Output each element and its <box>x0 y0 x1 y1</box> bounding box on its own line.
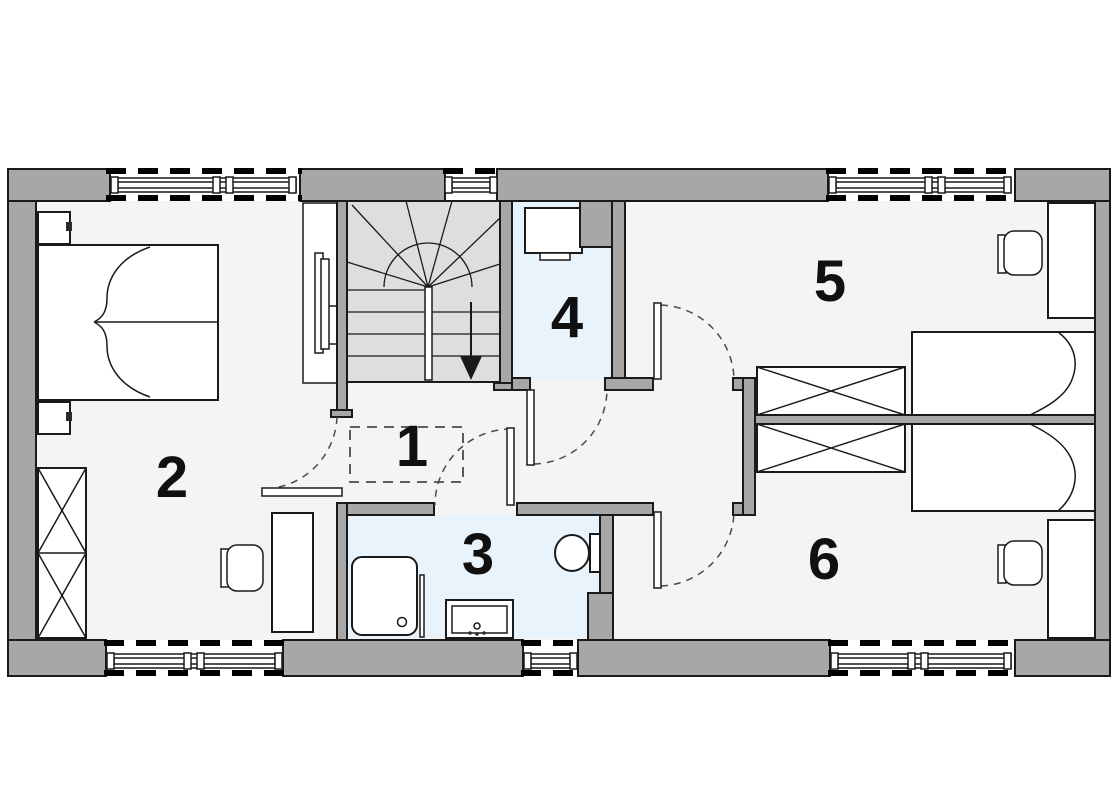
room-label-4: 4 <box>551 285 583 350</box>
outer-wall-top-b <box>300 169 445 201</box>
outer-wall-bottom-d <box>1015 640 1110 676</box>
wall-bath-north-b <box>517 503 653 515</box>
room4-furniture <box>525 208 582 260</box>
chair <box>998 541 1042 585</box>
door-leaf <box>654 303 661 379</box>
chair <box>221 545 263 591</box>
desk <box>1048 520 1095 638</box>
wall-hall-east <box>743 378 755 515</box>
window-bottom-room2 <box>104 643 285 673</box>
chimney-block <box>580 201 612 247</box>
wardrobe <box>757 367 905 415</box>
wall-stub-room6-door <box>733 503 743 515</box>
wall-room4-right <box>612 201 625 378</box>
wall-room4-bottom-right <box>605 378 653 390</box>
desk <box>272 513 313 632</box>
outer-wall-bottom-a <box>8 640 106 676</box>
nightstand <box>38 212 70 244</box>
shower-glass-panel <box>420 575 424 637</box>
wall-bath-corner-block <box>588 593 613 640</box>
single-bed <box>912 424 1095 511</box>
door-leaf <box>262 488 342 496</box>
outer-wall-top-a <box>8 169 110 201</box>
nightstand-knob-icon <box>66 412 72 421</box>
wall-stair-right <box>500 201 512 383</box>
staircase-floor <box>347 201 500 382</box>
floor-plan-page: 1 2 3 4 5 6 <box>0 0 1114 800</box>
double-bed <box>38 245 218 400</box>
outer-wall-top-c <box>497 169 828 201</box>
nightstand <box>38 402 70 434</box>
wall-stair-left-foot <box>331 410 352 417</box>
window-top-room2 <box>106 171 302 198</box>
wardrobe <box>38 468 86 638</box>
wall-stair-left <box>337 201 347 410</box>
window-bottom-bathroom <box>521 643 580 673</box>
door-leaf <box>527 390 534 465</box>
chair <box>998 231 1042 275</box>
wall-stub-room5-door <box>733 378 743 390</box>
toilet <box>555 534 600 572</box>
room-label-5: 5 <box>814 249 846 314</box>
room-label-6: 6 <box>808 527 840 592</box>
stair-handrail <box>425 287 432 380</box>
shower <box>352 557 417 635</box>
window-top-room5 <box>826 171 1017 198</box>
nightstand-knob-icon <box>66 222 72 231</box>
washbasin <box>446 600 513 638</box>
wardrobe <box>757 424 905 472</box>
window-top-staircase <box>443 171 499 193</box>
outer-wall-bottom-b <box>283 640 523 676</box>
room-label-1: 1 <box>396 414 428 479</box>
wall-divider-rooms-5-6 <box>755 415 1095 424</box>
wall-bath-left <box>337 503 347 640</box>
single-bed <box>912 332 1095 415</box>
desk <box>1048 203 1095 318</box>
outer-wall-bottom-c <box>578 640 830 676</box>
wall-room4-bottom-left <box>512 378 530 390</box>
door-leaf <box>507 428 514 505</box>
window-bottom-room6 <box>828 643 1017 673</box>
door-leaf <box>654 512 661 588</box>
outer-wall-left <box>8 169 36 676</box>
floor-plan-drawing: 1 2 3 4 5 6 <box>0 0 1114 800</box>
wall-bath-north-a <box>345 503 434 515</box>
room-label-2: 2 <box>156 445 188 510</box>
washing-machine <box>525 208 582 260</box>
outer-wall-top-d <box>1015 169 1110 201</box>
room-label-3: 3 <box>462 522 494 587</box>
wall-bath-right <box>600 515 613 593</box>
outer-wall-right <box>1095 169 1110 676</box>
